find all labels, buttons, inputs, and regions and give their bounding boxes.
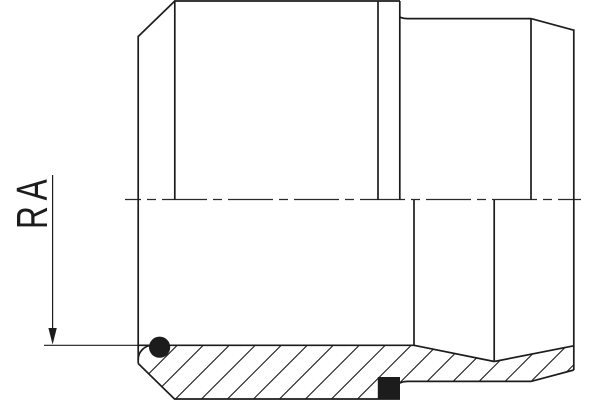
svg-text:RA: RA xyxy=(8,173,57,229)
